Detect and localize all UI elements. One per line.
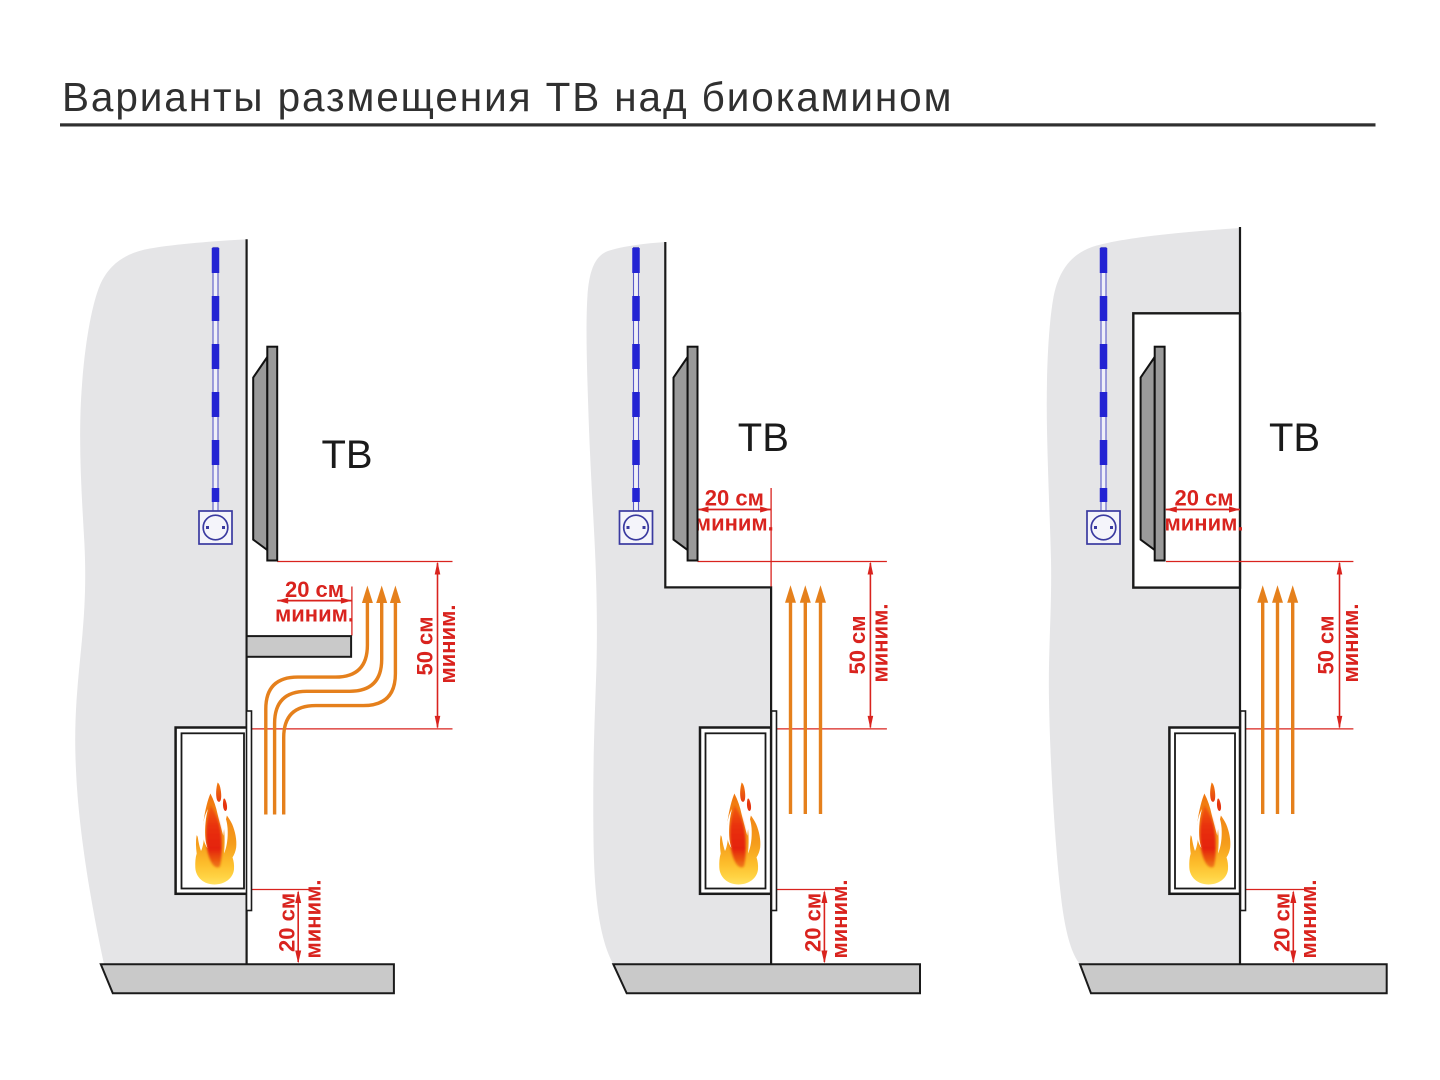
svg-text:ТВ: ТВ [1269, 416, 1320, 460]
svg-text:20 см: 20 см [1174, 486, 1233, 511]
svg-text:20 см: 20 см [705, 486, 764, 511]
svg-text:миним.: миним. [1165, 510, 1244, 535]
svg-text:20 см: 20 см [285, 577, 344, 602]
svg-text:ТВ: ТВ [738, 416, 789, 460]
svg-text:Варианты размещения ТВ над био: Варианты размещения ТВ над биокамином [62, 74, 953, 120]
svg-text:миним.: миним. [1338, 604, 1363, 683]
svg-text:миним.: миним. [867, 604, 892, 683]
svg-text:ТВ: ТВ [322, 433, 373, 477]
svg-text:50 см: 50 см [1313, 615, 1338, 674]
svg-text:миним.: миним. [435, 605, 460, 684]
svg-text:50 см: 50 см [845, 615, 870, 674]
svg-text:миним.: миним. [275, 602, 354, 627]
svg-text:миним.: миним. [695, 510, 774, 535]
svg-text:50 см: 50 см [413, 616, 438, 675]
